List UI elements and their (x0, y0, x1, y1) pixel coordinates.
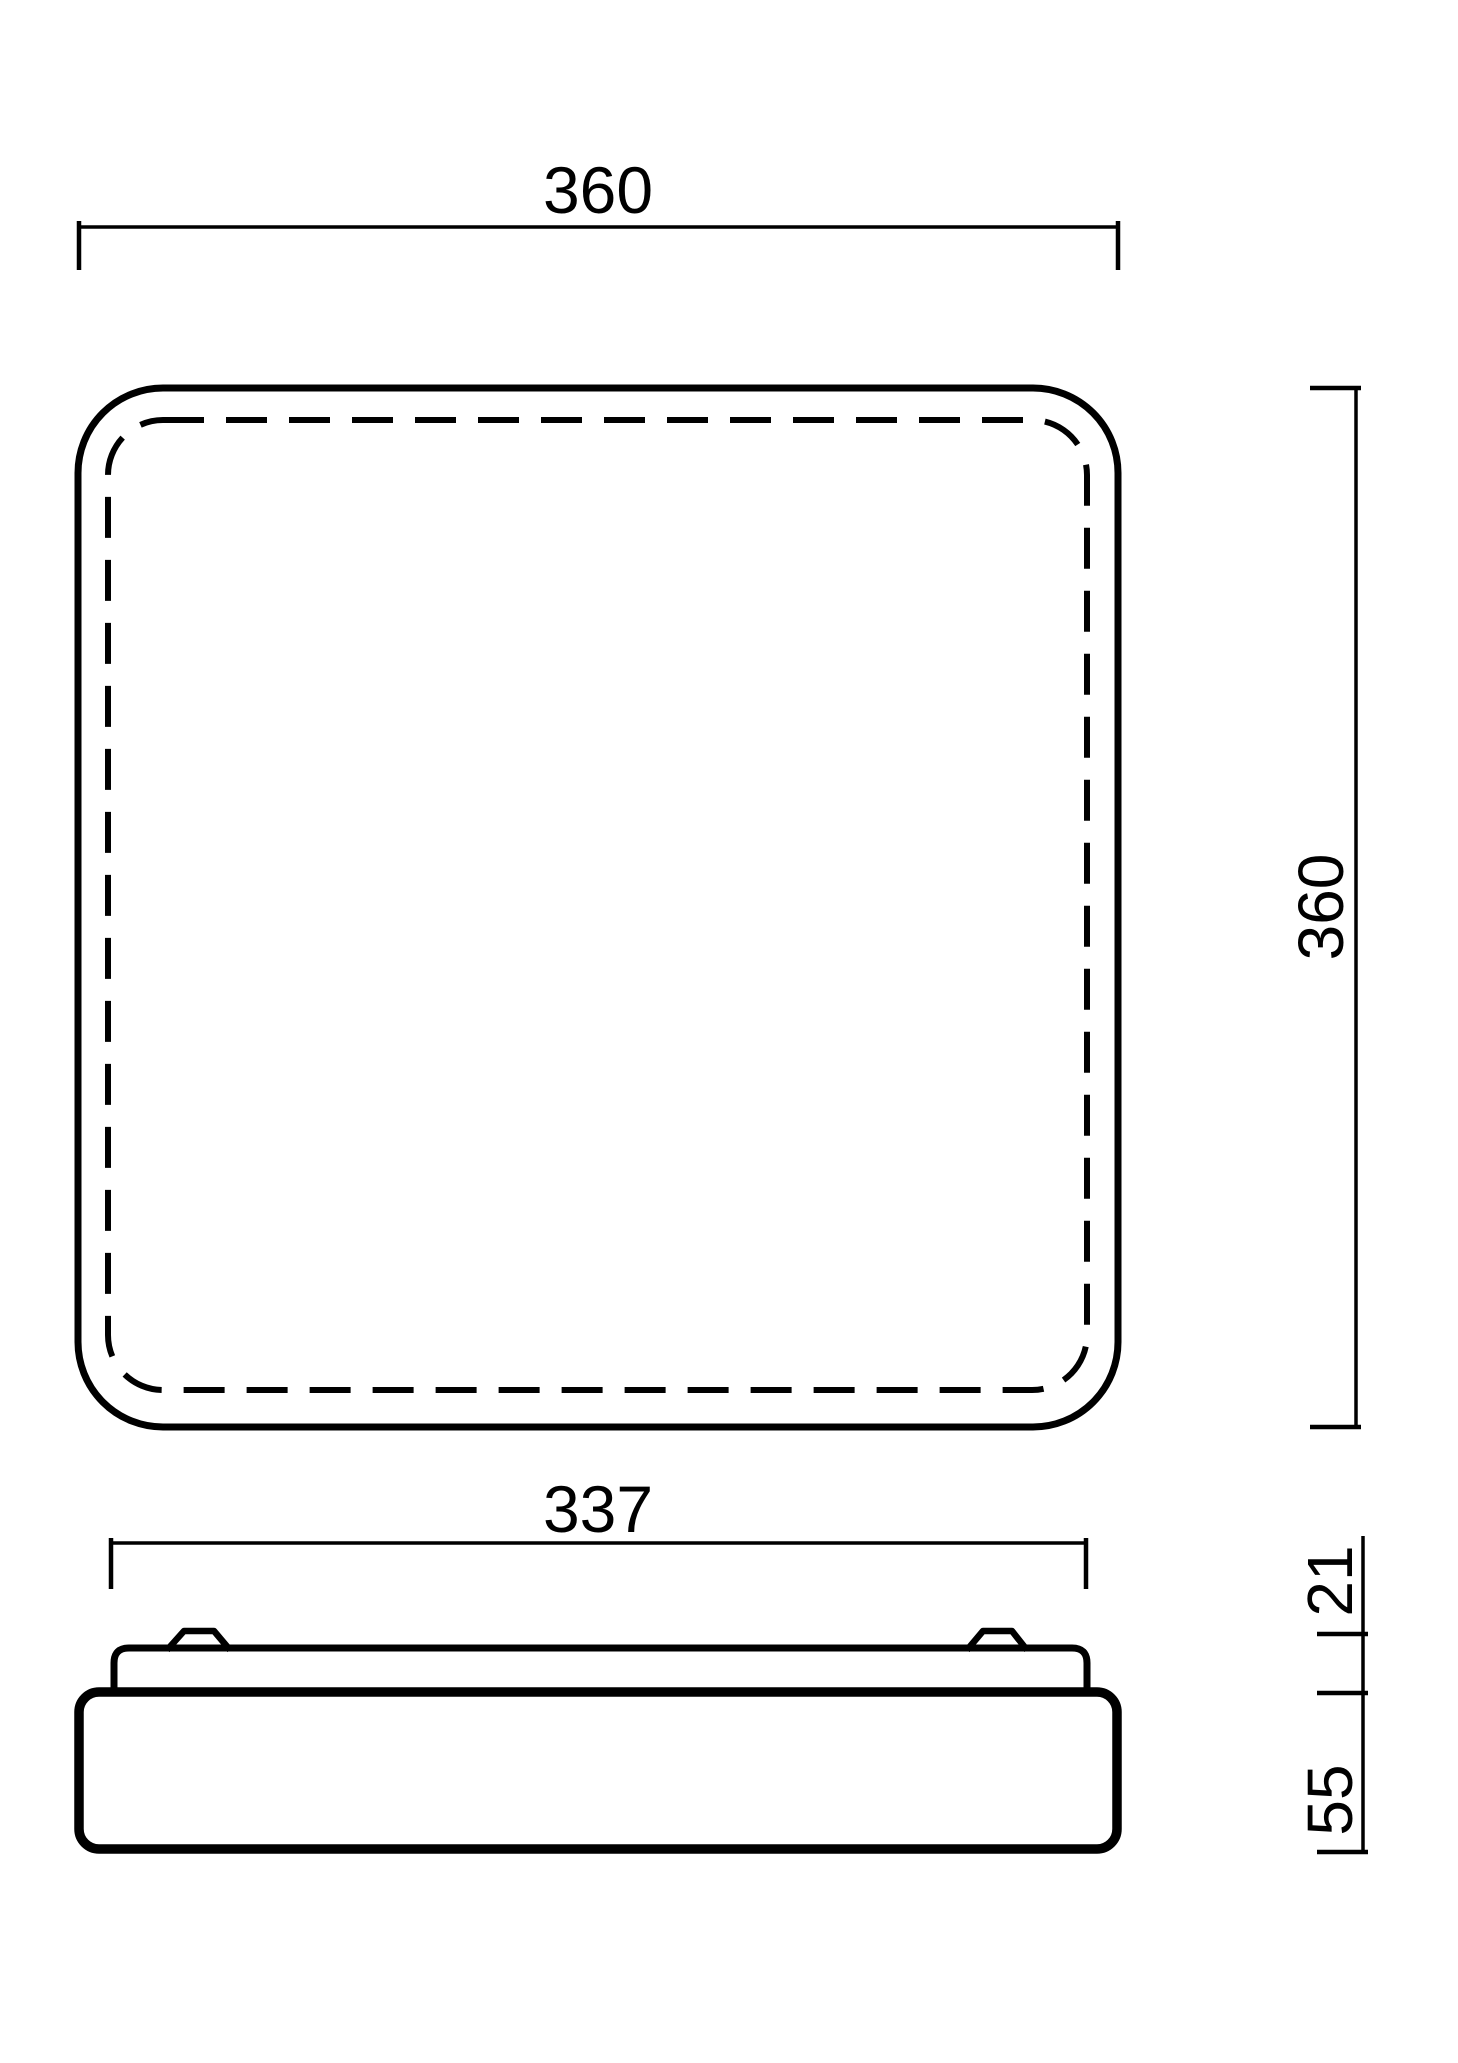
side-width-dimension: 337 (111, 1472, 1086, 1589)
side-view-cover-outline (114, 1648, 1087, 1694)
technical-drawing-page: 360 360 337 21 (0, 0, 1458, 2063)
side-upper-height-dimension-label: 21 (1294, 1545, 1366, 1616)
top-width-dimension: 360 (79, 153, 1118, 270)
top-view-outer-outline (78, 388, 1118, 1427)
top-height-dimension: 360 (1285, 388, 1361, 1427)
top-width-dimension-label: 360 (543, 153, 653, 227)
side-view-base-outline (79, 1692, 1117, 1849)
side-width-dimension-label: 337 (543, 1472, 653, 1546)
side-lower-height-dimension-label: 55 (1294, 1764, 1366, 1835)
side-height-dimensions: 21 55 (1294, 1536, 1368, 1853)
top-view-inner-dashed-outline (108, 420, 1087, 1390)
top-height-dimension-label: 360 (1285, 854, 1357, 961)
top-view (78, 388, 1118, 1427)
side-view (79, 1631, 1117, 1849)
technical-drawing-canvas: 360 360 337 21 (0, 0, 1458, 2063)
